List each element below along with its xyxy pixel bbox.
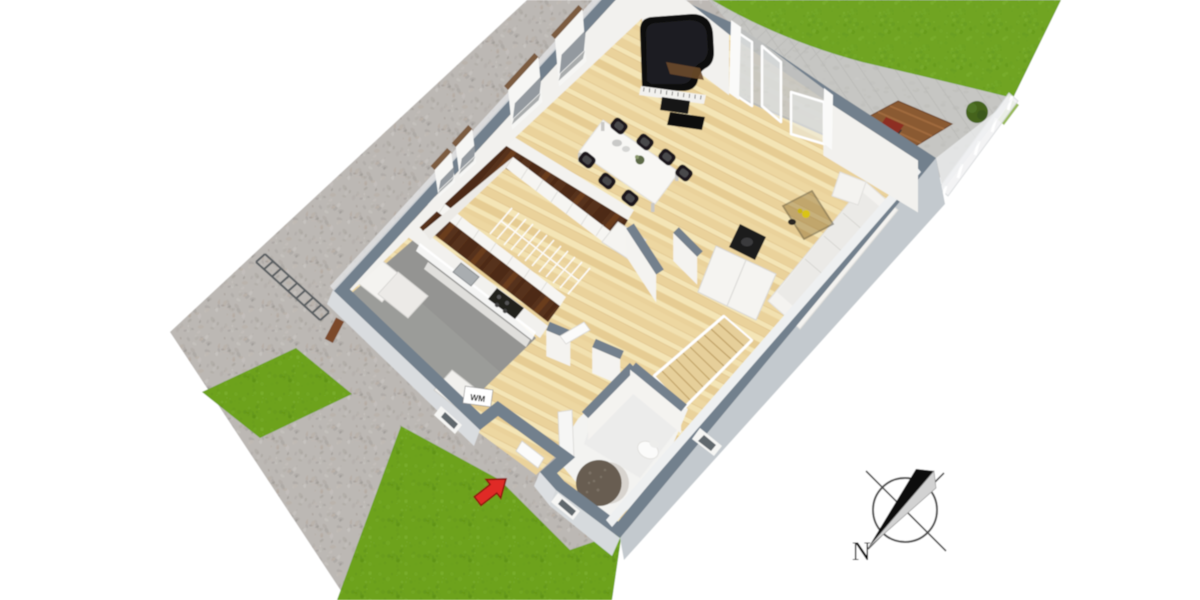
svg-text:WM: WM bbox=[470, 392, 486, 404]
svg-text:N: N bbox=[852, 537, 871, 566]
